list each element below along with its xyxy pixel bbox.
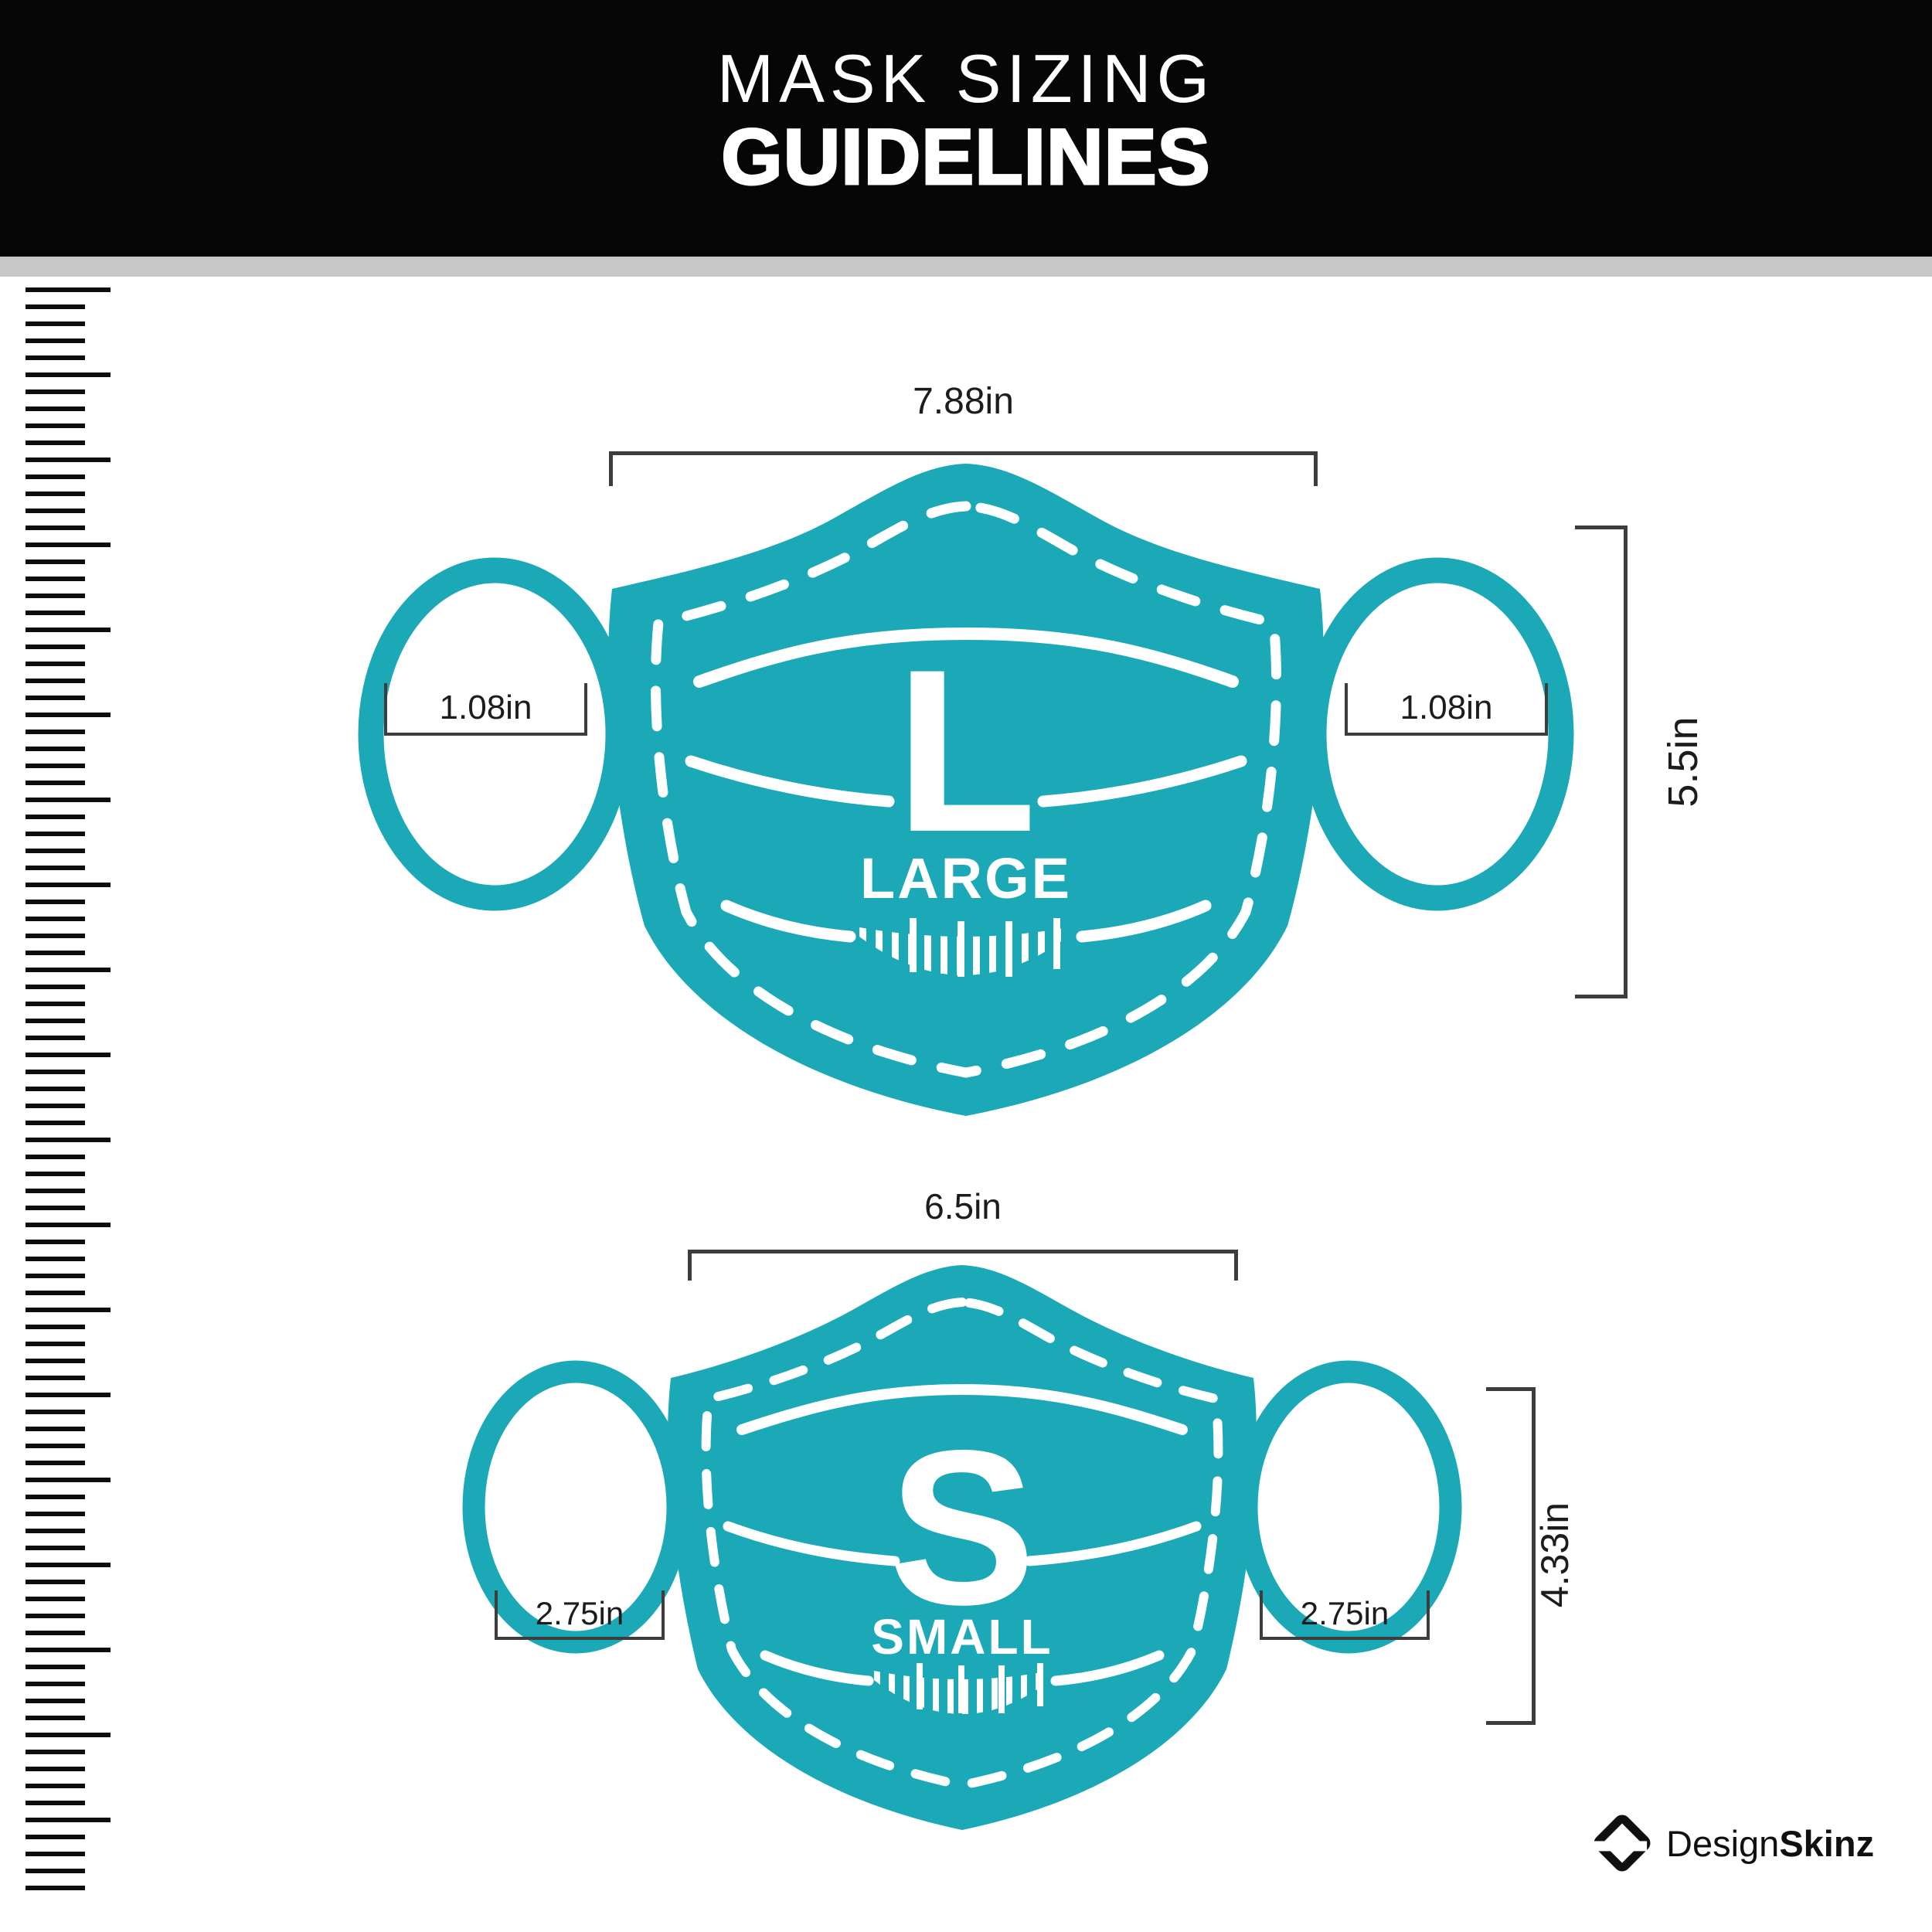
large-mask-tape-tick xyxy=(910,918,917,972)
large-mask-tape-tick xyxy=(1005,921,1012,977)
small-width-bracket xyxy=(688,1250,1238,1281)
small-height-label: 4.33in xyxy=(1535,1470,1575,1640)
header-divider xyxy=(0,257,1932,277)
small-mask-illustration: S SMALL xyxy=(340,1206,1600,1917)
small-left-ear-label: 2.75in xyxy=(495,1590,665,1640)
infographic-page: MASK SIZING GUIDELINES L LARG xyxy=(0,0,1932,1932)
large-mask-tape-tick xyxy=(957,921,964,977)
small-width-label: 6.5in xyxy=(688,1185,1238,1227)
brand-wordmark-bold: Skinz xyxy=(1779,1823,1874,1864)
large-mask-tape-tick xyxy=(1053,918,1060,969)
ruler-icon xyxy=(26,287,111,1903)
small-mask-size-word: SMALL xyxy=(871,1609,1053,1665)
large-left-ear-label: 1.08in xyxy=(384,683,587,736)
large-mask-illustration: L LARGE xyxy=(340,429,1600,1148)
small-height-bracket xyxy=(1486,1387,1536,1725)
small-right-ear-label: 2.75in xyxy=(1260,1590,1430,1640)
large-right-ear-label: 1.08in xyxy=(1345,683,1548,736)
large-width-bracket xyxy=(609,451,1318,486)
designskinz-diamond-icon xyxy=(1590,1811,1654,1875)
large-height-label: 5.5in xyxy=(1662,677,1705,847)
brand-wordmark-regular: Design xyxy=(1666,1823,1779,1864)
page-title-line1: MASK SIZING xyxy=(717,45,1215,113)
large-mask-size-letter: L xyxy=(895,621,1036,880)
large-height-bracket xyxy=(1575,526,1628,998)
large-width-label: 7.88in xyxy=(609,380,1318,423)
brand-wordmark: DesignSkinz xyxy=(1666,1822,1874,1865)
header-banner: MASK SIZING GUIDELINES xyxy=(0,0,1932,257)
page-title-line2: GUIDELINES xyxy=(721,117,1210,196)
small-mask-tape-tick xyxy=(917,1663,923,1709)
small-mask-tape-tick xyxy=(998,1665,1005,1713)
small-mask-tape-tick xyxy=(958,1665,964,1713)
large-mask-size-word: LARGE xyxy=(860,846,1072,910)
brand-logo: DesignSkinz xyxy=(1594,1815,1874,1872)
small-mask-tape-tick xyxy=(1037,1663,1043,1706)
